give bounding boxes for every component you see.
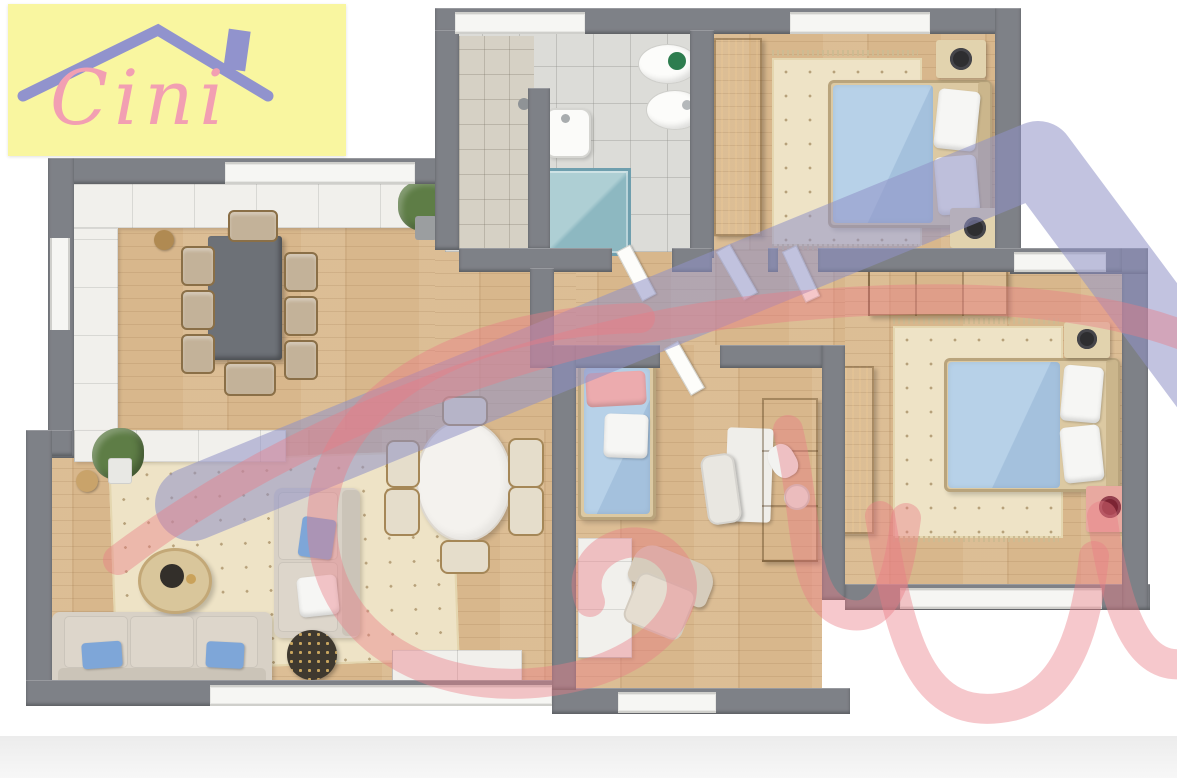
logo-text: Cini xyxy=(50,48,346,148)
bedroom1-rug-fringe-top xyxy=(772,50,918,56)
coffee-table-bowl xyxy=(160,564,184,588)
plant-pot xyxy=(108,458,132,484)
floor-plan-scene: Cini xyxy=(0,0,1177,778)
dining-chair xyxy=(181,290,215,330)
bedroom2-duvet xyxy=(948,362,1060,488)
wall-bedroom2-right xyxy=(1122,260,1148,610)
bedroom1-lamp xyxy=(950,48,972,70)
wall-hall-segment xyxy=(672,248,712,272)
oval-table-chair xyxy=(508,486,544,536)
bedroom1-pillow xyxy=(934,154,981,215)
dining-chair xyxy=(284,252,318,292)
oval-table-chair xyxy=(442,396,488,426)
sofa-cushion xyxy=(130,616,194,668)
pink-pillow xyxy=(585,370,647,407)
side-stool xyxy=(76,470,98,492)
speckled-side-table xyxy=(287,630,337,680)
bedroom1-lamp xyxy=(964,217,986,239)
wall-bedroom1-right xyxy=(995,8,1021,262)
dining-chair xyxy=(224,362,276,396)
coffee-table-deco xyxy=(186,574,196,584)
bedroom2-rug-fringe-bottom xyxy=(893,536,1059,542)
agency-logo: Cini xyxy=(8,4,346,156)
bedroom2-dresser xyxy=(868,270,1008,316)
oval-table-chair xyxy=(508,438,544,488)
dining-table xyxy=(208,236,282,360)
wall-bedroom1-left xyxy=(690,30,714,258)
window xyxy=(50,238,70,330)
bedroom1-wardrobe xyxy=(714,38,762,236)
wall-hall-stub xyxy=(530,268,554,368)
window xyxy=(790,12,930,34)
bedroom2-pillow xyxy=(1060,364,1105,423)
folded-blanket xyxy=(603,413,649,459)
bedroom2-maroon-lamp xyxy=(1099,496,1121,518)
bedroom2-rug-fringe-top xyxy=(893,318,1059,324)
oval-table-chair xyxy=(384,488,420,536)
toilet-lid-detail xyxy=(668,52,686,70)
wall-kids-left xyxy=(552,345,576,690)
wall-bedroom2-left xyxy=(822,345,845,600)
wall-kids-top-right xyxy=(720,345,822,368)
shower-tray xyxy=(545,168,631,256)
window xyxy=(900,588,1102,609)
dining-chair xyxy=(181,246,215,286)
wall-hall-pier xyxy=(768,248,778,272)
sectional-backrest xyxy=(342,490,360,636)
bedroom2-lamp xyxy=(1077,329,1097,349)
oval-table-chair xyxy=(440,540,490,574)
dining-chair xyxy=(181,334,215,374)
desk-lamp-base xyxy=(784,484,810,510)
dining-chair xyxy=(284,296,318,336)
window xyxy=(455,12,585,34)
oval-table-chair xyxy=(386,440,420,488)
window xyxy=(618,692,716,713)
shower-zone-tiles xyxy=(459,36,534,250)
blue-cushion xyxy=(205,641,244,669)
plant-pot xyxy=(415,216,437,240)
wall-bathroom-stub xyxy=(528,88,550,250)
stool xyxy=(154,230,174,250)
bedroom1-pillow xyxy=(933,88,981,152)
window xyxy=(210,685,552,706)
blue-cushion xyxy=(81,641,123,670)
oval-dining-table xyxy=(416,420,512,542)
window xyxy=(1014,252,1106,272)
dining-chair xyxy=(284,340,318,380)
bedroom1-duvet xyxy=(833,85,933,223)
blue-cushion xyxy=(297,516,336,560)
dining-wall-cabinet-left xyxy=(70,228,118,432)
window xyxy=(225,162,415,184)
wall-bathroom-left xyxy=(435,30,459,250)
wall-living-left xyxy=(26,430,52,706)
bedroom2-headboard xyxy=(1106,360,1118,490)
ground-shadow-strip xyxy=(0,736,1177,778)
kids-sideboard xyxy=(762,398,818,562)
bedroom2-pillow xyxy=(1059,424,1105,484)
white-cushion xyxy=(296,574,340,618)
sink-faucet xyxy=(561,114,570,123)
dining-chair xyxy=(228,210,278,242)
